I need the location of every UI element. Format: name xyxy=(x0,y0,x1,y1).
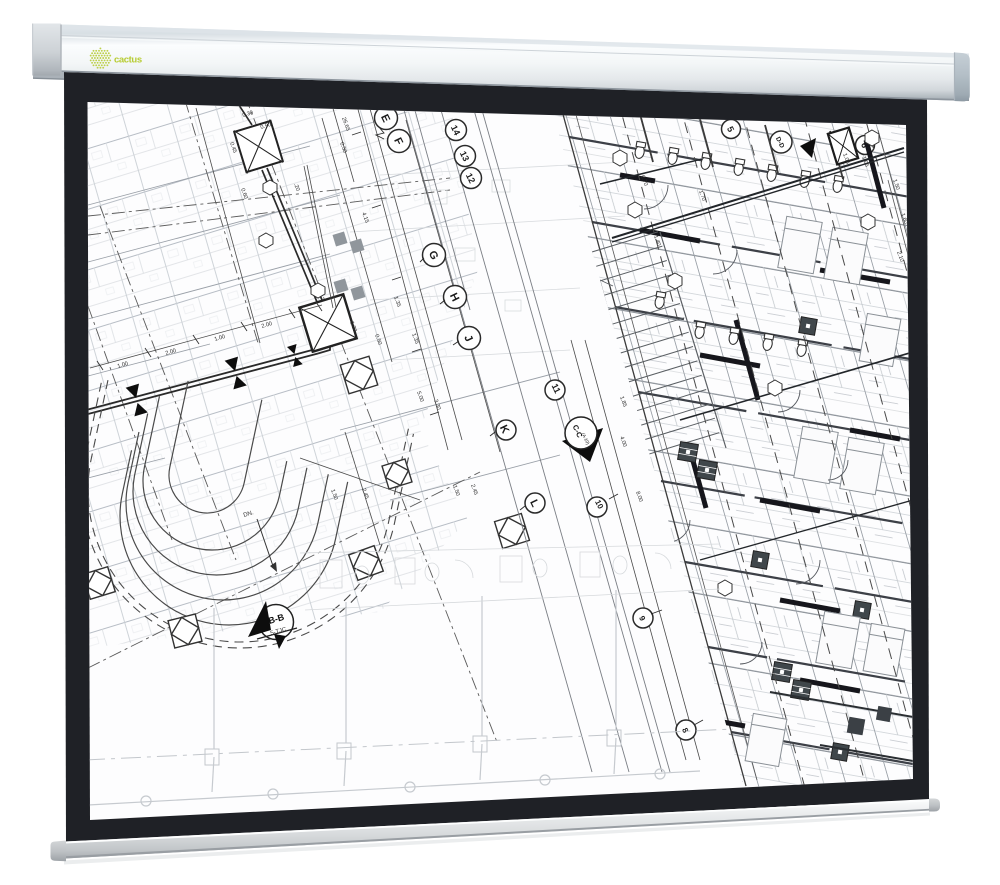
svg-text:cactus: cactus xyxy=(114,55,142,66)
